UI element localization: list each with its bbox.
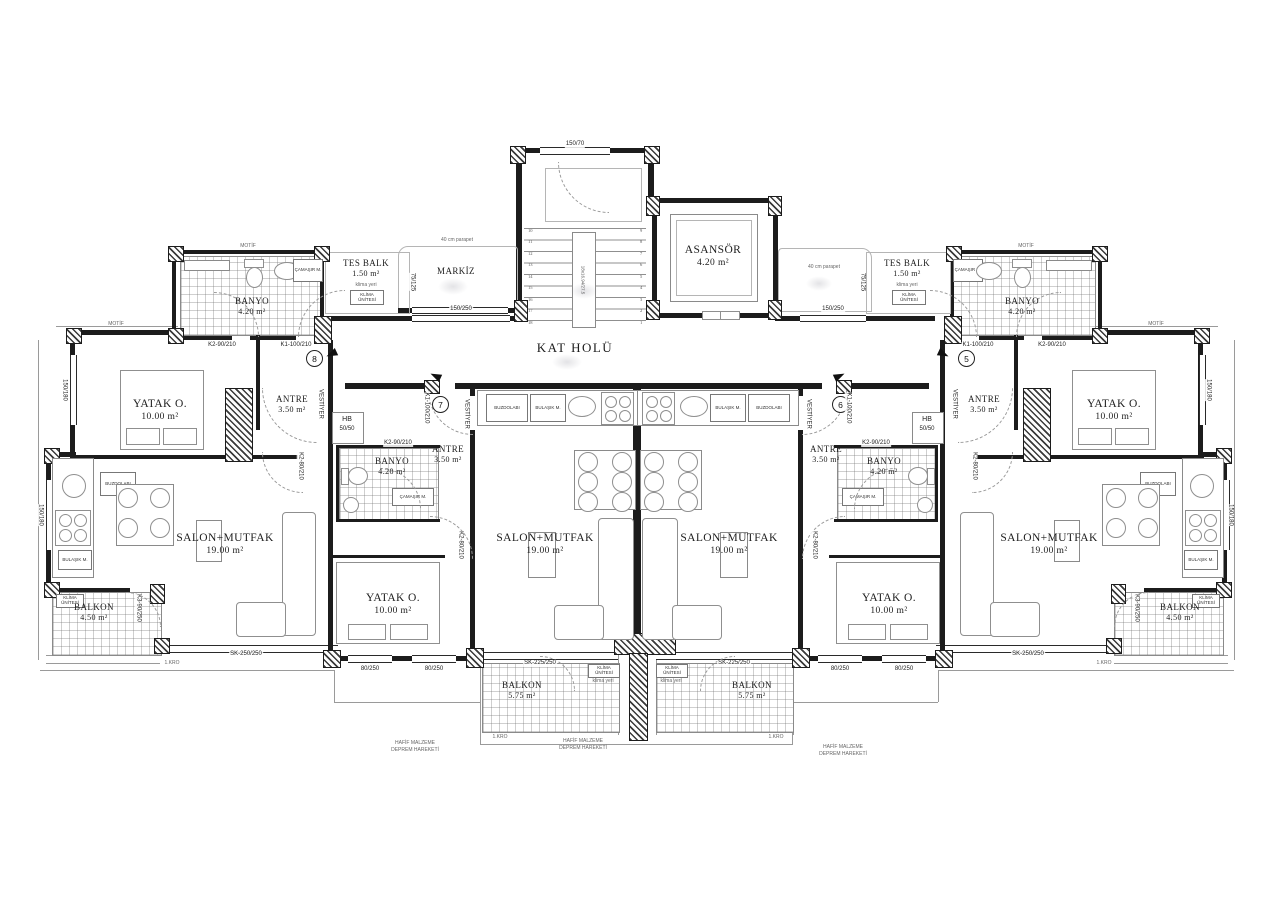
window-dim: SK-225/250 (523, 660, 557, 667)
window-80 (882, 655, 926, 663)
watermark (438, 278, 468, 295)
chair (578, 492, 598, 512)
contour-line (1234, 340, 1235, 660)
hatch-pillar (768, 300, 782, 320)
bed-pillow (390, 624, 428, 640)
material-note: HAFİF MALZEME DEPREM HAREKETİ (819, 744, 867, 758)
room-label-banyo: BANYO 4.20 m² (235, 296, 269, 316)
sink-icon (976, 262, 1002, 280)
step-number: 3 (640, 297, 642, 302)
window-dim: SK-250/250 (1011, 651, 1045, 658)
klima-yeri-note: klima yeri (355, 282, 376, 289)
sink-icon (62, 474, 86, 498)
unit-number-badge: 8 (306, 350, 323, 367)
hb-size-label: 50/50 (918, 426, 935, 433)
wall-segment (336, 519, 440, 522)
watermark (570, 283, 598, 299)
room-label-balkon: BALKON 4.50 m² (1160, 602, 1200, 622)
edge-label: 1.KRO (164, 660, 179, 667)
sofa (672, 605, 722, 640)
window-80 (348, 655, 392, 663)
window-dim: 150/180 (37, 504, 44, 526)
sink-icon (568, 396, 596, 417)
hatch-pillar (154, 638, 170, 654)
hall-label: KAT HOLÜ (537, 340, 613, 356)
step-number: 13 (528, 262, 533, 267)
room-label-salon: SALON+MUTFAK 19.00 m² (680, 532, 777, 557)
bath-counter (1046, 260, 1092, 271)
ac-unit: KLİMA ÜNİTESİ (350, 290, 384, 305)
stove-icon (55, 510, 91, 546)
wall-segment (455, 383, 637, 389)
wall-segment (256, 335, 260, 430)
bath-counter (184, 260, 230, 271)
contour-line (334, 670, 335, 702)
elevator-door (720, 311, 740, 320)
ac-unit: KLİMA ÜNİTESİ (656, 664, 688, 678)
door-arc (430, 516, 473, 559)
door-dim: K3-90/250 (1133, 594, 1140, 622)
unit-number-badge: 5 (958, 350, 975, 367)
step-number: 11 (528, 239, 532, 244)
chair (612, 492, 632, 512)
edge-label: 1.KRO (492, 734, 507, 741)
hatch-pillar (768, 196, 782, 216)
chair (644, 472, 664, 492)
window-dim: 150/180 (1205, 379, 1212, 401)
sofa (554, 605, 604, 640)
window-dim: SK-225/250 (717, 660, 751, 667)
step-number: 16 (528, 297, 533, 302)
wall-segment (172, 250, 325, 254)
room-label-yatak: YATAK O. 10.00 m² (1087, 398, 1141, 423)
klima-yeri-note: klima yeri (592, 678, 613, 685)
contour-line (1114, 663, 1228, 664)
room-label-yatak: YATAK O. 10.00 m² (862, 592, 916, 617)
room-label-banyo: BANYO 4.20 m² (375, 456, 409, 476)
hatch-pillar (792, 648, 810, 668)
wall-segment (1014, 335, 1018, 430)
window-dim: 150/250 (821, 306, 845, 313)
chair (578, 472, 598, 492)
chair (1138, 518, 1158, 538)
hb-label: HB (341, 416, 353, 424)
klima-yeri-note: klima yeri (660, 678, 681, 685)
chair (1106, 518, 1126, 538)
contour-line (938, 670, 939, 702)
step-number: 17 (528, 308, 533, 313)
sofa (960, 512, 994, 636)
door-arc (802, 516, 845, 559)
elevator-door (702, 311, 722, 320)
door-dim: K1-100/210 (423, 392, 430, 423)
wall-segment (949, 250, 1102, 254)
wardrobe (225, 388, 253, 462)
contour-line (334, 702, 480, 703)
chair (1106, 488, 1126, 508)
wall-segment (829, 555, 944, 558)
chair (118, 518, 138, 538)
dishwasher: BULAŞIK M. (58, 550, 92, 570)
hatch-pillar (644, 146, 660, 164)
hatch-pillar (646, 300, 660, 320)
dishwasher: BULAŞIK M. (530, 394, 566, 422)
door-dim: K2-80/210 (971, 452, 978, 480)
hatch-pillar (168, 328, 184, 344)
sofa (236, 602, 286, 637)
chair (678, 452, 698, 472)
chair (612, 452, 632, 472)
door-dim: K3-90/250 (135, 594, 142, 622)
hatch-pillar (150, 584, 165, 604)
stove-icon (642, 392, 675, 425)
room-label-banyo: BANYO 4.20 m² (867, 456, 901, 476)
wall-segment (940, 340, 945, 388)
hatch-pillar (514, 300, 528, 322)
window-80 (412, 655, 456, 663)
dishwasher: BULAŞIK M. (710, 394, 746, 422)
door-dim: K2-90/210 (1037, 342, 1067, 349)
window-dim: 150/70 (565, 141, 585, 148)
corridor-window (800, 315, 866, 322)
hatch-pillar (466, 648, 484, 668)
toilet-icon (908, 467, 928, 485)
window-dim: 75/125 (409, 273, 416, 291)
vestiyer-label: VESTİYER (951, 389, 958, 419)
motif-label: MOTİF (1148, 321, 1164, 328)
room-label-antre: ANTRE 3.50 m² (810, 444, 842, 464)
stair-window (540, 147, 610, 155)
step-number: 2 (640, 308, 642, 313)
vestiyer-label: VESTİYER (463, 399, 470, 429)
bed-pillow (1078, 428, 1112, 445)
sink-icon (1190, 474, 1214, 498)
wall-segment (863, 316, 935, 321)
vestiyer-label: VESTİYER (317, 389, 324, 419)
contour-line (40, 670, 335, 671)
bed-pillow (848, 624, 886, 640)
wall-segment (172, 250, 176, 340)
hatch-pillar (935, 650, 953, 668)
hatch-pillar (1092, 246, 1108, 262)
motif-label: MOTİF (108, 321, 124, 328)
wall-segment (336, 445, 339, 522)
chair (118, 488, 138, 508)
wall-segment (834, 519, 938, 522)
bed-pillow (126, 428, 160, 445)
wall-segment (1096, 330, 1202, 335)
corridor-window (412, 315, 510, 322)
hb-label: HB (921, 416, 933, 424)
sofa (990, 602, 1040, 637)
room-label-salon: SALON+MUTFAK 19.00 m² (496, 532, 593, 557)
bed-pillow (1115, 428, 1149, 445)
room-label-antre: ANTRE 3.50 m² (968, 394, 1000, 414)
watermark (806, 276, 832, 291)
toilet-icon (348, 467, 368, 485)
room-label-antre: ANTRE 3.50 m² (432, 444, 464, 464)
step-number: 4 (640, 285, 642, 290)
chair (612, 472, 632, 492)
step-number: 18 (528, 320, 533, 325)
wall-segment (345, 383, 425, 389)
bed-pillow (163, 428, 197, 445)
wall-segment (330, 555, 445, 558)
ac-unit: KLİMA ÜNİTESİ (892, 290, 926, 305)
hatch-pillar (66, 328, 82, 344)
step-number: 9 (640, 228, 642, 233)
step-number: 6 (640, 262, 642, 267)
door-dim: K2-80/210 (811, 531, 818, 559)
toilet-icon (246, 267, 263, 288)
step-number: 8 (640, 239, 642, 244)
entrance-arrow-icon (325, 348, 338, 360)
room-label-balkon: BALKON 4.50 m² (74, 602, 114, 622)
step-number: 1 (640, 320, 642, 325)
bed-pillow (348, 624, 386, 640)
window-dim: 80/250 (360, 666, 380, 673)
party-wall (633, 389, 641, 651)
room-label-balkon: BALKON 5.75 m² (502, 680, 542, 700)
klima-yeri-note: klima yeri (896, 282, 917, 289)
step-number: 10 (528, 228, 533, 233)
door-dim: K2-80/210 (457, 531, 464, 559)
sink-icon (680, 396, 708, 417)
bed-pillow (890, 624, 928, 640)
toilet-icon (927, 468, 935, 485)
step-number: 14 (528, 274, 533, 279)
wall-segment (637, 383, 822, 389)
room-label-tes-balk: TES BALK 1.50 m² (884, 258, 930, 278)
step-number: 5 (640, 274, 642, 279)
wall-segment (935, 445, 938, 522)
motif-label: MOTİF (240, 243, 256, 250)
stove-icon (1185, 510, 1221, 546)
parapet-note: 40 cm parapet (808, 264, 840, 271)
hatch-pillar (1106, 638, 1122, 654)
fridge: BUZDOLABI (486, 394, 528, 422)
door-dim: K2-90/210 (861, 440, 891, 447)
chair (644, 492, 664, 512)
room-label-balkon: BALKON 5.75 m² (732, 680, 772, 700)
edge-label: 1.KRO (1096, 660, 1111, 667)
window-dim: 150/250 (449, 306, 473, 313)
room-label-salon: SALON+MUTFAK 19.00 m² (176, 532, 273, 557)
sink-icon (917, 497, 933, 513)
wall-segment (470, 430, 475, 656)
room-label-yatak: YATAK O. 10.00 m² (133, 398, 187, 423)
ac-unit: KLİMA ÜNİTESİ (588, 664, 620, 678)
step-number: 12 (528, 251, 533, 256)
door-arc (972, 452, 1013, 493)
wall-segment (1098, 250, 1102, 340)
chair (678, 472, 698, 492)
wall-segment (328, 340, 333, 388)
entrance-arrow-icon (937, 348, 950, 360)
step-number: 7 (640, 251, 642, 256)
room-label-antre: ANTRE 3.50 m² (276, 394, 308, 414)
unit-number-badge: 7 (432, 396, 449, 413)
wall-segment (72, 330, 178, 335)
contour-line (46, 663, 160, 664)
window-dim: 80/250 (894, 666, 914, 673)
edge-label: 1.KRO (768, 734, 783, 741)
toilet-icon (1014, 267, 1031, 288)
door-dim: K2-90/210 (207, 342, 237, 349)
floor-plan: 18x16.94/27.5 (0, 0, 1273, 900)
hatch-pillar (646, 196, 660, 216)
chair (150, 488, 170, 508)
markiz-label: MARKİZ (437, 266, 475, 277)
window-dim: 80/250 (830, 666, 850, 673)
door-dim: K1-100/210 (845, 392, 852, 423)
window-dim: 150/180 (1227, 504, 1234, 526)
hatch-pillar (323, 650, 341, 668)
window-dim: 80/250 (424, 666, 444, 673)
window-80 (818, 655, 862, 663)
material-note: HAFİF MALZEME DEPREM HAREKETİ (391, 740, 439, 754)
room-label-tes-balk: TES BALK 1.50 m² (343, 258, 389, 278)
hatch-pillar (510, 146, 526, 164)
contour-line (938, 670, 1234, 671)
hatch-pillar (1194, 328, 1210, 344)
stove-icon (601, 392, 634, 425)
contour-line (792, 702, 938, 703)
chair (678, 492, 698, 512)
elevator-wall (652, 198, 778, 203)
watermark (552, 354, 582, 370)
material-note: HAFİF MALZEME DEPREM HAREKETİ (559, 738, 607, 752)
room-label-salon: SALON+MUTFAK 19.00 m² (1000, 532, 1097, 557)
chair (644, 452, 664, 472)
window-dim: 75/125 (859, 273, 866, 291)
contour-line (480, 744, 793, 745)
wardrobe (1023, 388, 1051, 462)
hatch-pillar (168, 246, 184, 262)
hb-size-label: 50/50 (338, 426, 355, 433)
elevator-label: ASANSÖR 4.20 m² (685, 244, 741, 269)
hatch-pillar (1092, 328, 1108, 344)
window-dim: SK-250/250 (229, 651, 263, 658)
chair (578, 452, 598, 472)
wall-segment (852, 383, 929, 389)
dishwasher: BULAŞIK M. (1184, 550, 1218, 570)
step-number: 15 (528, 285, 533, 290)
washing-machine: ÇAMAŞIR M. (293, 259, 323, 282)
sink-icon (343, 497, 359, 513)
window-dim: 150/180 (61, 379, 68, 401)
chair (150, 518, 170, 538)
wall-segment (798, 430, 803, 656)
sofa (282, 512, 316, 636)
room-label-yatak: YATAK O. 10.00 m² (366, 592, 420, 617)
center-column (629, 653, 648, 741)
door-dim: K1-100/210 (279, 342, 312, 349)
contour-line (38, 340, 39, 660)
vestiyer-label: VESTİYER (805, 399, 812, 429)
chair (1138, 488, 1158, 508)
fridge: BUZDOLABI (748, 394, 790, 422)
room-label-banyo: BANYO 4.20 m² (1005, 296, 1039, 316)
door-dim: K1-100/210 (961, 342, 994, 349)
door-dim: K2-80/210 (297, 452, 304, 480)
window (70, 355, 77, 425)
door-dim: K2-90/210 (383, 440, 413, 447)
motif-label: MOTİF (1018, 243, 1034, 250)
parapet-note: 40 cm parapet (441, 237, 473, 244)
